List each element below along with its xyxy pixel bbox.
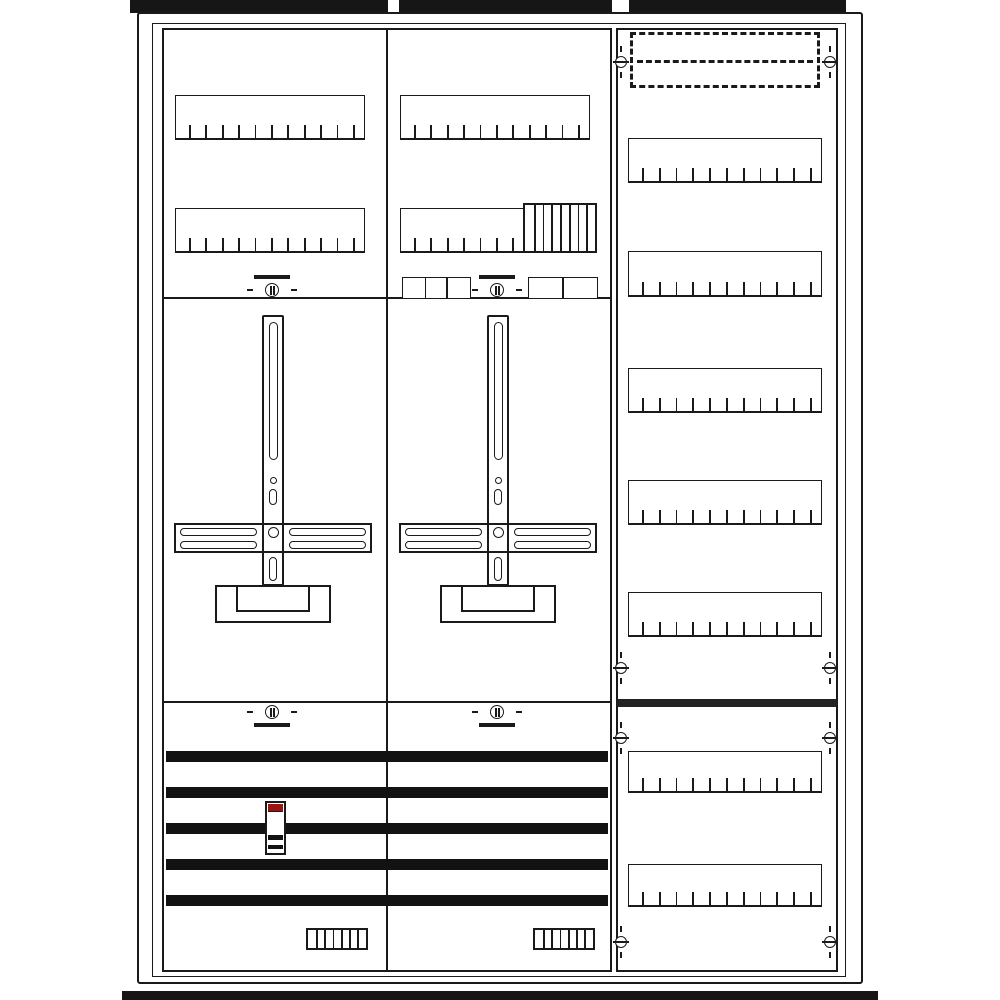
terminal-block-divider (576, 930, 578, 948)
din-rail-tick (676, 398, 678, 411)
din-rail-tick (642, 778, 644, 791)
din-rail-tick (776, 398, 778, 411)
din-rail-tick (480, 125, 482, 138)
connector-box-divider (562, 278, 564, 298)
din-rail-tick (337, 238, 339, 251)
edge-screw (613, 46, 629, 78)
din-rail-tick (743, 510, 745, 523)
din-rail-tick (271, 238, 273, 251)
din-rail-tick (709, 168, 711, 181)
seal-screw-dash (472, 711, 478, 713)
din-rail-tick (743, 282, 745, 295)
terminal-block-divider (357, 930, 359, 948)
din-rail-tick (743, 398, 745, 411)
edge-screw-dash (829, 926, 831, 932)
din-rail-tick (760, 778, 762, 791)
knockout-midline (637, 60, 813, 63)
crossbar-slot (289, 541, 366, 549)
din-rail-tick (692, 892, 694, 905)
din-rail-tick (304, 125, 306, 138)
knockout-dashed-cover (630, 32, 820, 88)
din-rail-tick (659, 282, 661, 295)
din-rail-tick (776, 892, 778, 905)
module-block-stripe (586, 205, 588, 251)
din-rail-right (628, 251, 822, 297)
din-rail-tick (430, 125, 432, 138)
din-rail-tick (222, 125, 224, 138)
din-rail-tick (430, 238, 432, 251)
din-rail-tick (793, 510, 795, 523)
din-rail-tick (205, 238, 207, 251)
seal-screw-dash (291, 289, 297, 291)
busbar (166, 859, 608, 870)
din-rail-tick (578, 125, 580, 138)
din-rail-tick (676, 892, 678, 905)
seal-screw-head (265, 283, 279, 297)
busbar (166, 895, 608, 906)
edge-screw-dash (620, 72, 622, 78)
seal-screw-dash (291, 711, 297, 713)
crossbar-slot (405, 528, 482, 536)
seal-screw-bar (254, 723, 290, 727)
din-rail-tick (414, 125, 416, 138)
seal-screw-head (265, 705, 279, 719)
seal-screw-slot (273, 286, 275, 295)
seal-screw-slot (495, 286, 497, 295)
din-rail-tick (743, 622, 745, 635)
crossbar-slot (514, 541, 591, 549)
din-rail-left-top (175, 95, 365, 140)
din-rail-left-top (175, 208, 365, 253)
din-rail-tick (709, 398, 711, 411)
din-rail-tick (760, 168, 762, 181)
din-rail-right (628, 368, 822, 413)
din-rail-tick (776, 778, 778, 791)
meter-rail-slot (269, 557, 277, 581)
edge-screw (613, 926, 629, 958)
edge-screw-dash (620, 952, 622, 958)
bottom-rail-bar (122, 991, 878, 1000)
din-rail-tick (743, 778, 745, 791)
edge-screw-slot (822, 941, 838, 943)
din-rail-tick (793, 398, 795, 411)
meter-cabinet-diagram (0, 0, 1000, 1000)
din-rail-tick (810, 168, 812, 181)
right-panel-divider-bar (617, 699, 837, 707)
terminal-block-divider (584, 930, 586, 948)
din-rail-tick (760, 892, 762, 905)
din-rail-tick (287, 238, 289, 251)
din-rail-tick (642, 892, 644, 905)
din-rail-tick (743, 168, 745, 181)
din-rail-tick (545, 125, 547, 138)
din-rail-tick (692, 510, 694, 523)
edge-screw-dash (829, 46, 831, 52)
din-rail-tick (320, 125, 322, 138)
din-rail-tick (480, 238, 482, 251)
seal-screw-head (490, 283, 504, 297)
crossbar-slot (405, 541, 482, 549)
meter-rail-hole (270, 477, 277, 484)
busbar-switch-band (268, 835, 283, 840)
meter-rail-slot (269, 489, 277, 505)
crossbar-center-hole (493, 527, 504, 538)
din-rail-tick (726, 622, 728, 635)
din-rail-tick (659, 892, 661, 905)
seal-screw-head (490, 705, 504, 719)
din-rail-right (628, 480, 822, 525)
din-rail-tick (222, 238, 224, 251)
din-rail-tick (726, 778, 728, 791)
edge-screw-slot (613, 61, 629, 63)
edge-screw-dash (829, 652, 831, 658)
din-rail-tick (642, 398, 644, 411)
seal-screw-bar (479, 275, 515, 279)
din-rail-tick (776, 622, 778, 635)
din-rail-tick (205, 125, 207, 138)
din-rail-tick (659, 510, 661, 523)
connector-box-group (402, 277, 471, 298)
seal-screw-bar (254, 275, 290, 279)
din-rail-tick (496, 125, 498, 138)
terminal-block-divider (333, 930, 335, 948)
crossbar-slot (289, 528, 366, 536)
din-rail-tick (709, 510, 711, 523)
din-rail-tick (463, 238, 465, 251)
connector-box-divider (425, 278, 427, 298)
seal-screw (472, 274, 522, 306)
edge-screw-dash (620, 678, 622, 684)
edge-screw (613, 722, 629, 754)
din-rail-tick (512, 125, 514, 138)
module-block (523, 203, 597, 253)
terminal-block-divider (560, 930, 562, 948)
meter-rail-hole (495, 477, 502, 484)
din-rail-tick (726, 168, 728, 181)
edge-screw-dash (829, 722, 831, 728)
seal-screw-slot (498, 286, 500, 295)
din-rail-tick (271, 125, 273, 138)
edge-screw-slot (822, 667, 838, 669)
din-rail-tick (760, 398, 762, 411)
terminal-block-divider (324, 930, 326, 948)
edge-screw (822, 722, 838, 754)
din-rail-tick (793, 168, 795, 181)
din-rail-tick (238, 125, 240, 138)
din-rail-tick (692, 168, 694, 181)
seal-screw-dash (516, 711, 522, 713)
seal-screw (247, 274, 297, 306)
din-rail-tick (562, 125, 564, 138)
din-rail-tick (810, 778, 812, 791)
edge-screw (822, 652, 838, 684)
seal-screw-dash (516, 289, 522, 291)
din-rail-tick (447, 125, 449, 138)
module-block-stripe (578, 205, 580, 251)
din-rail-tick (760, 510, 762, 523)
edge-screw-dash (620, 722, 622, 728)
din-rail-tick (692, 282, 694, 295)
din-rail-tick (287, 125, 289, 138)
module-block-stripe (569, 205, 571, 251)
din-rail-tick (793, 892, 795, 905)
section-divider (162, 701, 612, 703)
seal-screw-slot (495, 708, 497, 717)
terminal-block-divider (543, 930, 545, 948)
edge-screw (822, 926, 838, 958)
seal-screw-dash (247, 711, 253, 713)
din-rail-tick (676, 282, 678, 295)
edge-screw-dash (620, 652, 622, 658)
din-rail-tick (642, 168, 644, 181)
din-rail-tick (810, 282, 812, 295)
edge-screw-dash (620, 926, 622, 932)
seal-screw-dash (472, 289, 478, 291)
din-rail-right-bottom (628, 864, 822, 907)
din-rail-tick (692, 778, 694, 791)
din-rail-right (628, 138, 822, 183)
busbar (166, 787, 608, 798)
din-rail-tick (642, 282, 644, 295)
din-rail-tick (776, 168, 778, 181)
din-rail-tick (353, 238, 355, 251)
din-rail-tick (726, 892, 728, 905)
din-rail-tick (676, 168, 678, 181)
edge-screw-slot (613, 737, 629, 739)
din-rail-tick (255, 238, 257, 251)
din-rail-middle-top (400, 95, 590, 140)
din-rail-tick (320, 238, 322, 251)
din-rail-tick (810, 398, 812, 411)
crossbar-slot (514, 528, 591, 536)
edge-screw-dash (620, 748, 622, 754)
din-rail-tick (793, 778, 795, 791)
din-rail-tick (659, 778, 661, 791)
din-rail-tick (414, 238, 416, 251)
din-rail-tick (776, 282, 778, 295)
din-rail-right-bottom (628, 751, 822, 793)
seal-screw (472, 696, 522, 728)
din-rail-tick (692, 622, 694, 635)
din-rail-tick (776, 510, 778, 523)
terminal-block-divider (349, 930, 351, 948)
meter-base-inner (461, 585, 535, 612)
seal-screw-slot (498, 708, 500, 717)
busbar-switch-red-cap (268, 804, 283, 812)
edge-screw (822, 46, 838, 78)
terminal-block-divider (341, 930, 343, 948)
din-rail-tick (353, 125, 355, 138)
edge-screw-slot (822, 61, 838, 63)
din-rail-tick (760, 282, 762, 295)
crossbar-slot (180, 541, 257, 549)
din-rail-tick (238, 238, 240, 251)
module-block-stripe (543, 205, 545, 251)
din-rail-tick (189, 125, 191, 138)
edge-screw-slot (613, 667, 629, 669)
din-rail-tick (709, 622, 711, 635)
edge-screw-dash (829, 678, 831, 684)
terminal-block (306, 928, 368, 950)
din-rail-tick (447, 238, 449, 251)
crossbar-center-hole (268, 527, 279, 538)
din-rail-tick (726, 510, 728, 523)
busbar (166, 751, 608, 762)
din-rail-tick (810, 510, 812, 523)
connector-box-divider (446, 278, 448, 298)
connector-box-group (528, 277, 598, 298)
seal-screw-dash (247, 289, 253, 291)
module-block-stripe (534, 205, 536, 251)
meter-rail-slot (494, 322, 503, 460)
seal-screw-slot (270, 286, 272, 295)
din-rail-tick (337, 125, 339, 138)
terminal-block-divider (551, 930, 553, 948)
edge-screw-dash (829, 748, 831, 754)
din-rail-tick (726, 282, 728, 295)
terminal-block-divider (316, 930, 318, 948)
din-rail-tick (709, 778, 711, 791)
crossbar-slot (180, 528, 257, 536)
seal-screw-slot (273, 708, 275, 717)
din-rail-tick (676, 778, 678, 791)
meter-rail-slot (494, 557, 502, 581)
din-rail-tick (709, 892, 711, 905)
din-rail-tick (255, 125, 257, 138)
edge-screw-dash (829, 952, 831, 958)
din-rail-tick (529, 125, 531, 138)
din-rail-tick (189, 238, 191, 251)
din-rail-tick (642, 622, 644, 635)
din-rail-tick (692, 398, 694, 411)
meter-rail-slot (494, 489, 502, 505)
edge-screw-slot (822, 737, 838, 739)
din-rail-tick (659, 168, 661, 181)
din-rail-tick (709, 282, 711, 295)
din-rail-tick (659, 622, 661, 635)
din-rail-tick (642, 510, 644, 523)
seal-screw-bar (479, 723, 515, 727)
din-rail-tick (810, 892, 812, 905)
module-block-stripe (551, 205, 553, 251)
din-rail-tick (760, 622, 762, 635)
meter-rail-slot (269, 322, 278, 460)
din-rail-tick (304, 238, 306, 251)
din-rail-tick (810, 622, 812, 635)
busbar-switch-band (268, 845, 283, 849)
din-rail-tick (496, 238, 498, 251)
din-rail-tick (793, 282, 795, 295)
terminal-block (533, 928, 595, 950)
edge-screw (613, 652, 629, 684)
seal-screw (247, 696, 297, 728)
module-block-stripe (560, 205, 562, 251)
din-rail-tick (676, 510, 678, 523)
terminal-block-divider (568, 930, 570, 948)
seal-screw-slot (270, 708, 272, 717)
din-rail-tick (659, 398, 661, 411)
din-rail-tick (726, 398, 728, 411)
edge-screw-dash (829, 72, 831, 78)
edge-screw-dash (620, 46, 622, 52)
din-rail-tick (463, 125, 465, 138)
din-rail-tick (793, 622, 795, 635)
din-rail-right (628, 592, 822, 637)
din-rail-tick (743, 892, 745, 905)
busbar (166, 823, 608, 834)
edge-screw-slot (613, 941, 629, 943)
meter-base-inner (236, 585, 310, 612)
din-rail-tick (512, 238, 514, 251)
din-rail-tick (676, 622, 678, 635)
busbar-switch (265, 801, 286, 855)
